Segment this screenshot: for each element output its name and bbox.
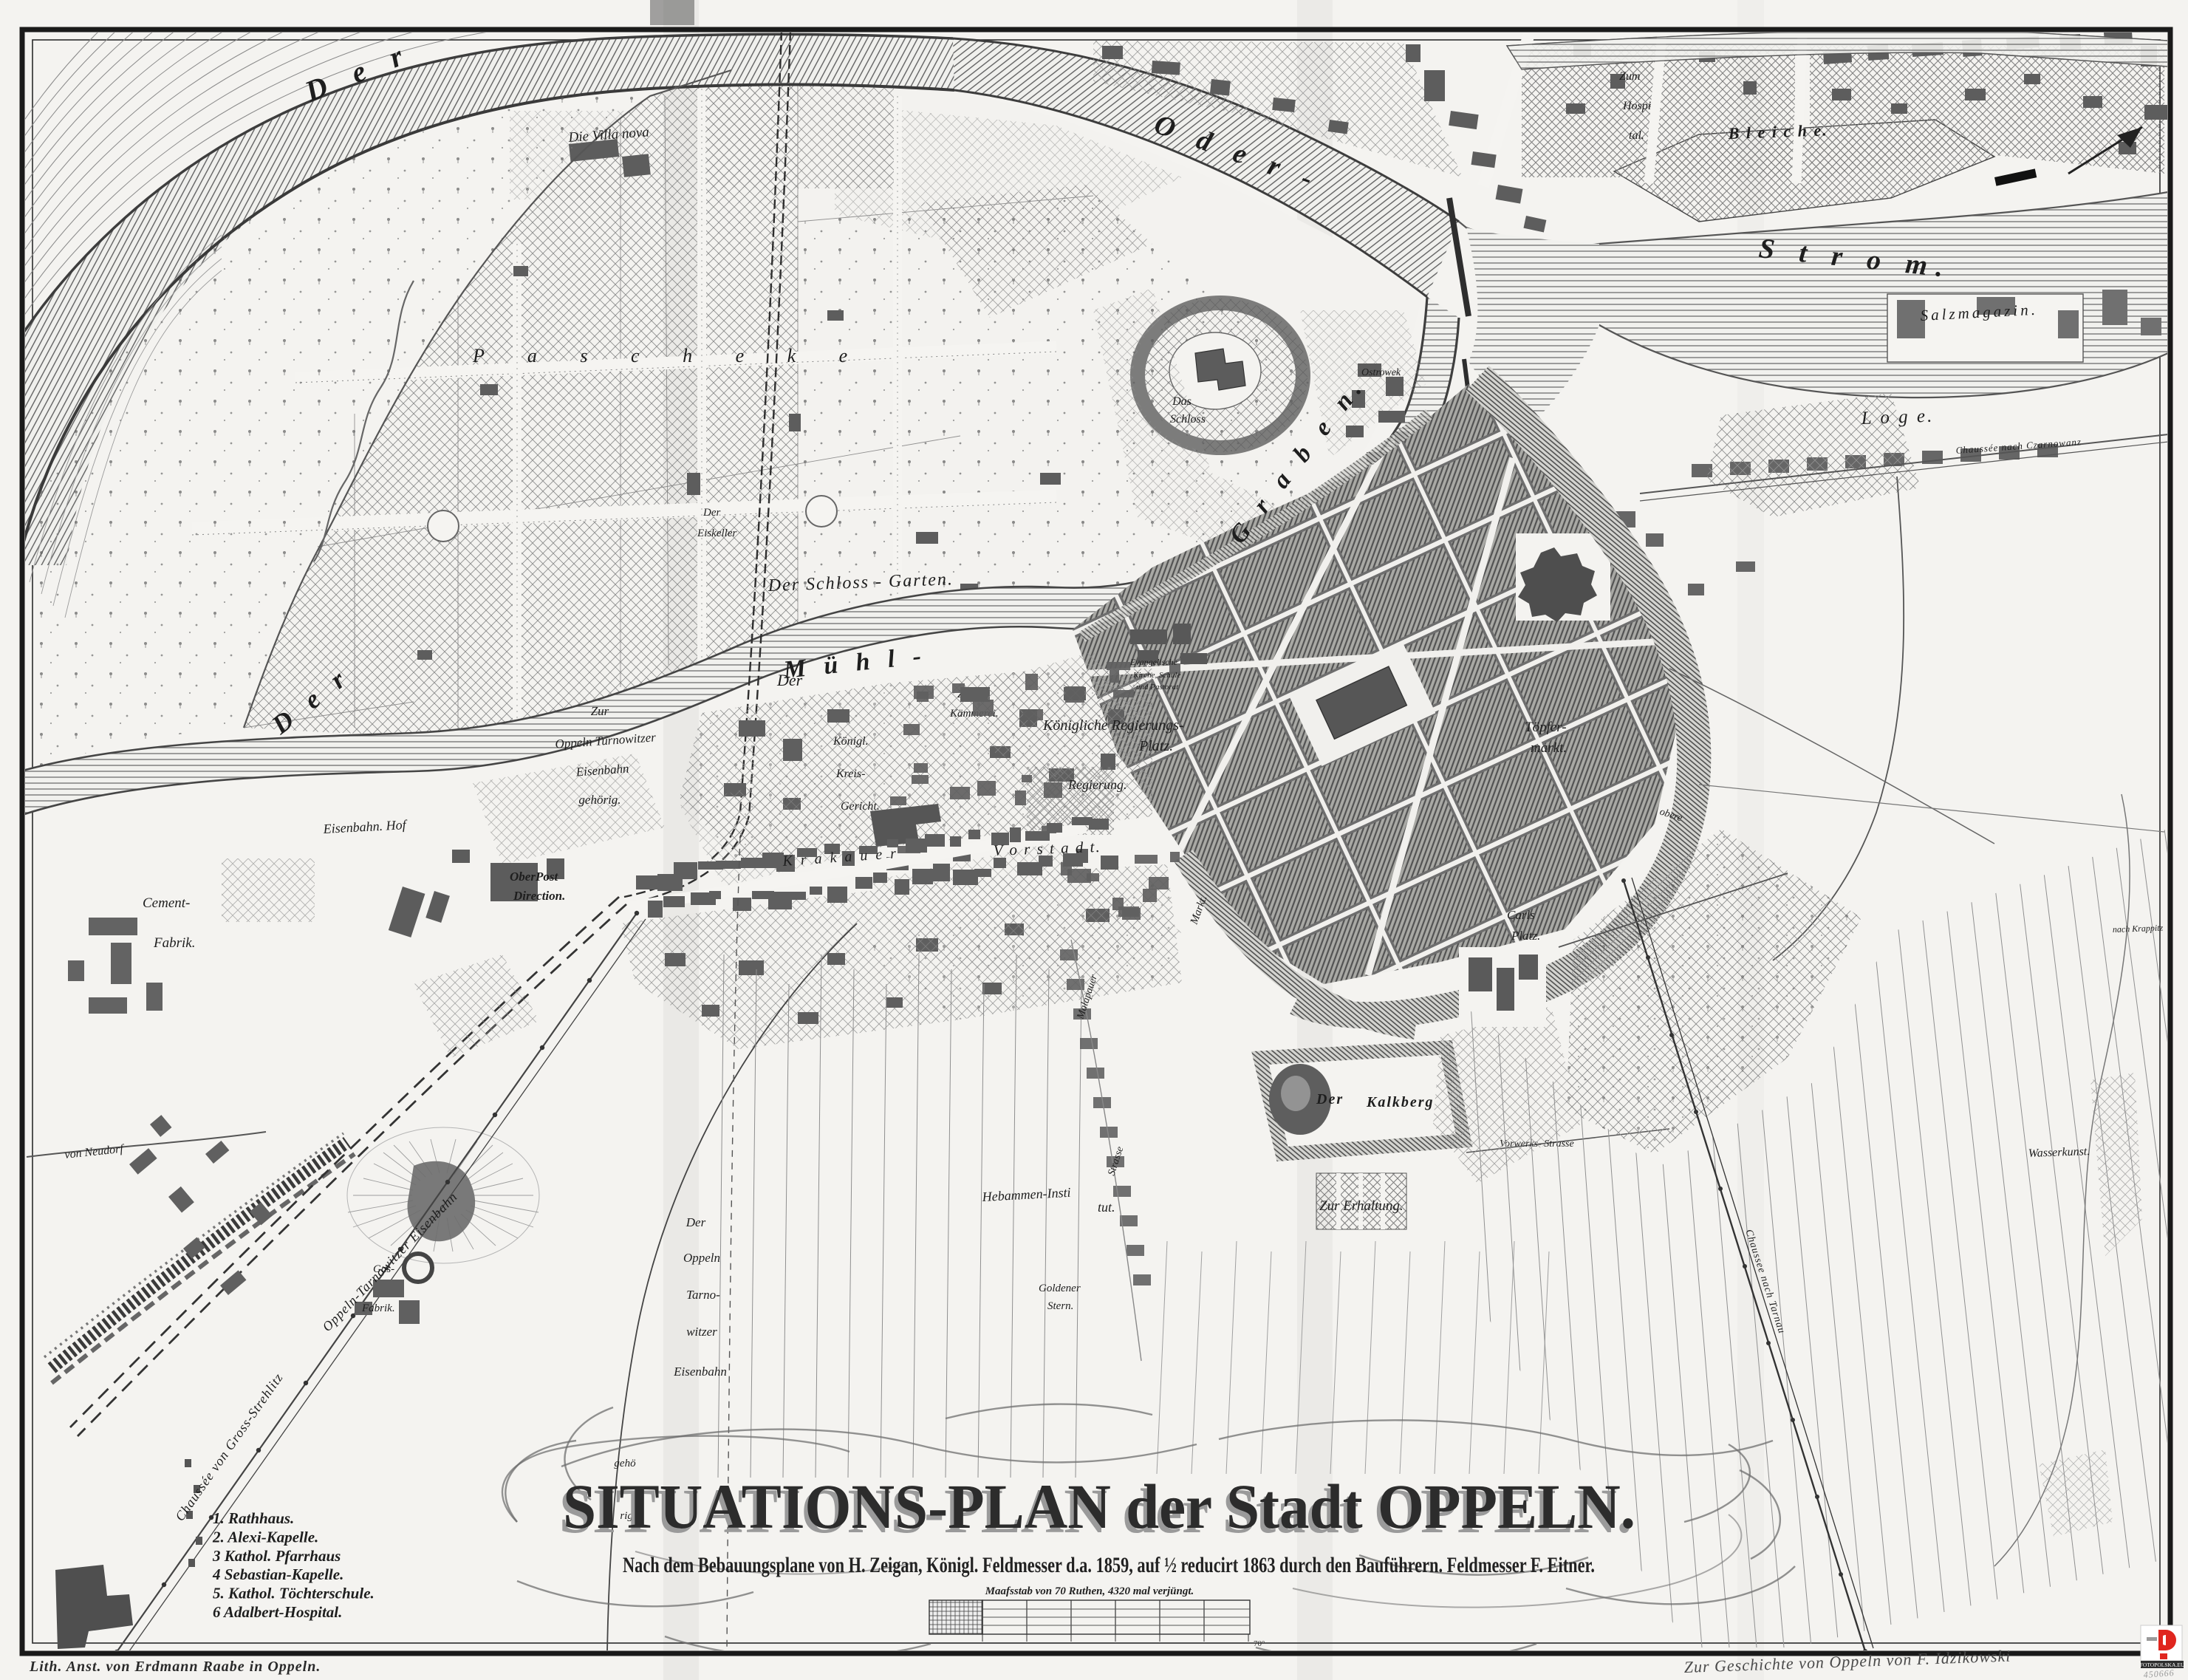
svg-text:70°: 70° (1254, 1639, 1265, 1648)
svg-text:L o g e.: L o g e. (1860, 406, 1934, 428)
svg-text:Zur: Zur (591, 704, 609, 718)
svg-text:Lith. Anst. von Erdmann Raabe: Lith. Anst. von Erdmann Raabe in Oppeln. (29, 1659, 321, 1675)
svg-text:Der: Der (686, 1215, 706, 1229)
svg-text:1. Rathhaus.: 1. Rathhaus. (213, 1509, 294, 1527)
svg-text:witzer: witzer (686, 1325, 717, 1339)
svg-text:nach Krappitz: nach Krappitz (2113, 923, 2164, 935)
svg-text:5. Kathol. Töchterschule.: 5. Kathol. Töchterschule. (213, 1585, 375, 1602)
svg-text:Der: Der (702, 507, 720, 519)
svg-text:OberPost: OberPost (510, 870, 558, 884)
svg-text:Das: Das (1172, 395, 1192, 408)
svg-text:Eisenbahn: Eisenbahn (673, 1365, 727, 1379)
svg-text:Kreis-: Kreis- (835, 768, 865, 780)
svg-text:3 Kathol. Pfarrhaus: 3 Kathol. Pfarrhaus (212, 1547, 341, 1565)
svg-text:markt.: markt. (1531, 740, 1567, 756)
svg-text:Kirche, Schule: Kirche, Schule (1132, 671, 1180, 680)
svg-text:4 Sebastian-Kapelle.: 4 Sebastian-Kapelle. (212, 1565, 343, 1583)
svg-text:Goldener: Goldener (1039, 1283, 1081, 1294)
svg-text:SITUATIONS-PLAN der Stadt OPPE: SITUATIONS-PLAN der Stadt OPPELN. (563, 1471, 1635, 1542)
svg-text:V o r s t a d t.: V o r s t a d t. (993, 838, 1101, 859)
svg-text:Evangelische: Evangelische (1129, 657, 1178, 667)
svg-text:Carls: Carls (1507, 908, 1535, 922)
svg-text:tal.: tal. (1629, 129, 1644, 142)
svg-text:Direction.: Direction. (513, 889, 565, 903)
svg-text:Zur Erhaltung.: Zur Erhaltung. (1319, 1198, 1404, 1214)
svg-text:Platz.: Platz. (1511, 929, 1540, 943)
svg-text:Cement-: Cement- (143, 895, 190, 911)
svg-text:2. Alexi-Kapelle.: 2. Alexi-Kapelle. (212, 1528, 318, 1546)
svg-text:Fabrik.: Fabrik. (361, 1302, 395, 1314)
svg-text:Nach dem Bebauungsplane von H: Nach dem Bebauungsplane von H. Zeigan, K… (623, 1553, 1595, 1577)
svg-text:Der: Der (1316, 1091, 1344, 1107)
svg-text:Wasserkunst.: Wasserkunst. (2028, 1145, 2090, 1160)
svg-text:450666: 450666 (2143, 1667, 2175, 1680)
svg-text:Zum: Zum (1619, 70, 1640, 83)
svg-text:Platz.: Platz. (1138, 738, 1173, 754)
svg-text:Der: Der (776, 671, 803, 689)
svg-text:Regierung.: Regierung. (1067, 777, 1127, 792)
svg-text:Ostrowek: Ostrowek (1361, 367, 1401, 378)
svg-text:Fabrik.: Fabrik. (153, 935, 195, 951)
svg-text:P a s c h e k e: P a s c h e k e (472, 345, 866, 366)
svg-text:Hospi: Hospi (1622, 100, 1651, 112)
svg-text:Gericht.: Gericht. (841, 800, 880, 813)
svg-text:Königliche Regierungs-: Königliche Regierungs- (1042, 717, 1184, 734)
svg-text:FOTOPOLSKA.EU: FOTOPOLSKA.EU (2140, 1662, 2185, 1668)
svg-text:Töpfer-: Töpfer- (1525, 720, 1567, 735)
svg-text:gehörig.: gehörig. (578, 793, 620, 807)
svg-text:Eiskeller: Eiskeller (697, 527, 736, 539)
svg-text:6 Adalbert-Hospital.: 6 Adalbert-Hospital. (213, 1603, 342, 1621)
svg-text:Stern.: Stern. (1047, 1300, 1073, 1312)
svg-text:gehö: gehö (614, 1458, 636, 1469)
svg-text:Oppeln: Oppeln (683, 1251, 720, 1265)
svg-text:Tarno-: Tarno- (686, 1288, 720, 1302)
svg-text:Kalkberg: Kalkberg (1366, 1094, 1435, 1110)
svg-text:Königl.: Königl. (833, 735, 869, 748)
svg-text:und Pastorat: und Pastorat (1136, 683, 1179, 692)
svg-text:Maafsstab von 70 Ruthen, 4320: Maafsstab von 70 Ruthen, 4320 mal verjün… (985, 1585, 1194, 1597)
svg-text:B l e i c h e.: B l e i c h e. (1727, 120, 1828, 143)
svg-text:Schloss: Schloss (1170, 413, 1206, 426)
svg-text:tut.: tut. (1098, 1200, 1115, 1215)
